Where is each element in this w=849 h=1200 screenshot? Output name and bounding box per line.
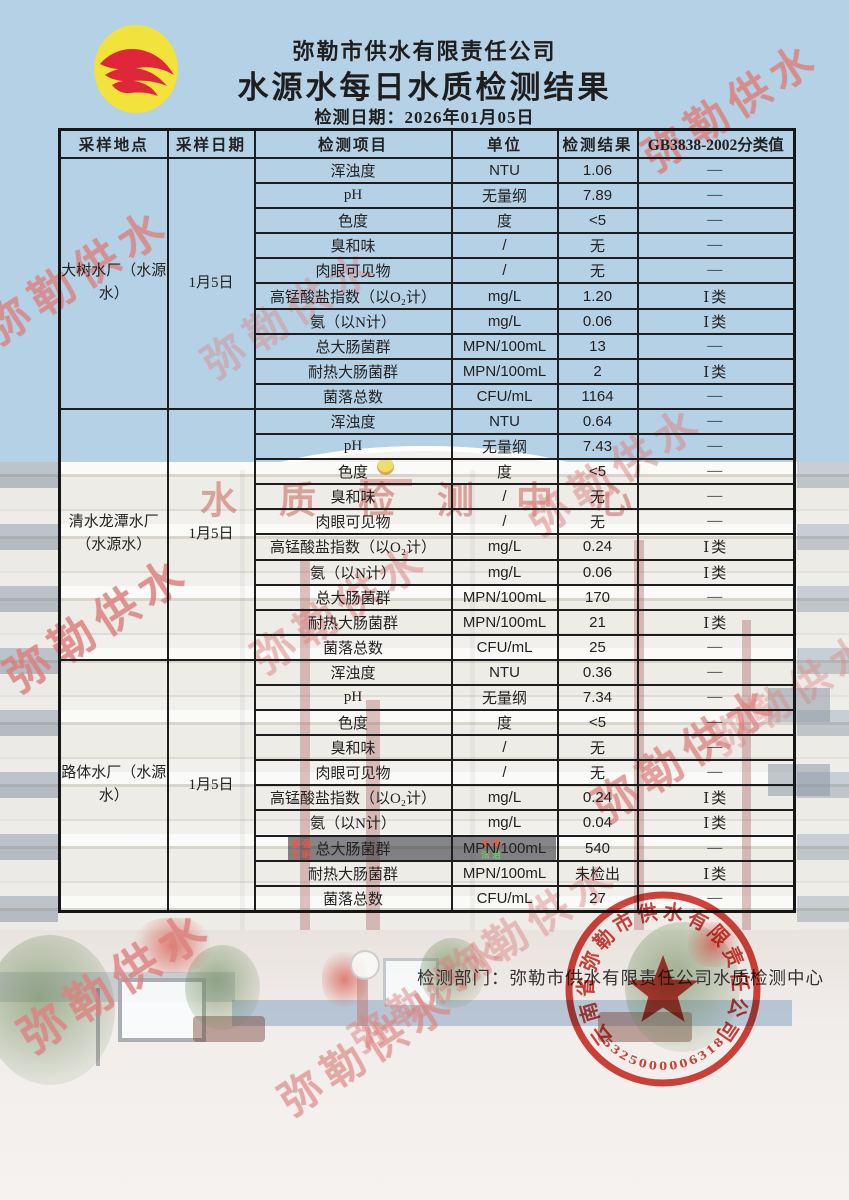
- cell-item: 浑浊度: [255, 409, 452, 434]
- cell-result: <5: [558, 710, 638, 735]
- cell-item: 耐热大肠菌群: [255, 359, 452, 384]
- cell-unit: mg/L: [452, 534, 558, 559]
- cell-unit: CFU/mL: [452, 886, 558, 912]
- cell-unit: CFU/mL: [452, 635, 558, 660]
- cell-result: 0.36: [558, 660, 638, 685]
- cell-unit: MPN/100mL: [452, 359, 558, 384]
- cell-result: 0.06: [558, 309, 638, 334]
- cell-unit: 度: [452, 710, 558, 735]
- results-table: 采样地点采样日期检测项目单位检测结果GB3838-2002分类值 大树水厂（水源…: [58, 128, 796, 913]
- cell-class: Ⅰ类: [638, 810, 795, 835]
- cell-class: —: [638, 334, 795, 359]
- cell-location: 大树水厂（水源水）: [60, 158, 168, 409]
- cell-class: —: [638, 484, 795, 509]
- cell-result: 未检出: [558, 861, 638, 886]
- cell-unit: NTU: [452, 158, 558, 183]
- cell-result: 21: [558, 610, 638, 635]
- cell-item: 肉眼可见物: [255, 509, 452, 534]
- cell-item: 总大肠菌群: [255, 334, 452, 359]
- cell-unit: /: [452, 258, 558, 283]
- cell-item: 浑浊度: [255, 660, 452, 685]
- cell-result: 170: [558, 585, 638, 610]
- cell-result: 1.20: [558, 283, 638, 308]
- cell-result: 1164: [558, 384, 638, 409]
- cell-unit: MPN/100mL: [452, 334, 558, 359]
- cell-class: Ⅰ类: [638, 283, 795, 308]
- cell-item: 色度: [255, 459, 452, 484]
- cell-unit: MPN/100mL: [452, 861, 558, 886]
- cell-class: —: [638, 459, 795, 484]
- cell-result: <5: [558, 459, 638, 484]
- cell-class: —: [638, 710, 795, 735]
- cell-unit: mg/L: [452, 785, 558, 810]
- cell-result: 2: [558, 359, 638, 384]
- cell-unit: NTU: [452, 409, 558, 434]
- cell-item: 臭和味: [255, 735, 452, 760]
- cell-item: pH: [255, 685, 452, 710]
- cell-item: 耐热大肠菌群: [255, 861, 452, 886]
- table-row: 大树水厂（水源水）1月5日浑浊度NTU1.06—: [60, 158, 795, 183]
- cell-item: 肉眼可见物: [255, 760, 452, 785]
- cell-unit: /: [452, 735, 558, 760]
- cell-result: 0.24: [558, 534, 638, 559]
- cell-unit: 无量纲: [452, 434, 558, 459]
- cell-location: 路体水厂（水源水）: [60, 660, 168, 912]
- building-left-wing: [0, 462, 58, 935]
- cell-unit: NTU: [452, 660, 558, 685]
- cell-class: —: [638, 685, 795, 710]
- cell-result: 0.24: [558, 785, 638, 810]
- cell-unit: mg/L: [452, 283, 558, 308]
- table-row: 清水龙潭水厂（水源水）1月5日浑浊度NTU0.64—: [60, 409, 795, 434]
- cell-class: Ⅰ类: [638, 359, 795, 384]
- cell-item: pH: [255, 434, 452, 459]
- cell-item: 色度: [255, 208, 452, 233]
- cell-unit: /: [452, 484, 558, 509]
- cell-result: <5: [558, 208, 638, 233]
- cell-result: 0.06: [558, 560, 638, 585]
- lamp-pole: [96, 988, 100, 1066]
- column-header: 检测项目: [255, 130, 452, 159]
- column-header: 采样地点: [60, 130, 168, 159]
- cell-item: 菌落总数: [255, 635, 452, 660]
- cell-result: 7.89: [558, 183, 638, 208]
- cell-date: 1月5日: [168, 660, 255, 912]
- cell-result: 1.06: [558, 158, 638, 183]
- cell-item: 臭和味: [255, 233, 452, 258]
- cell-result: 7.34: [558, 685, 638, 710]
- table-header-row: 采样地点采样日期检测项目单位检测结果GB3838-2002分类值: [60, 130, 795, 159]
- cell-item: pH: [255, 183, 452, 208]
- cell-class: —: [638, 409, 795, 434]
- cell-class: —: [638, 509, 795, 534]
- cell-class: Ⅰ类: [638, 861, 795, 886]
- column-header: 采样日期: [168, 130, 255, 159]
- cell-class: —: [638, 660, 795, 685]
- cell-class: —: [638, 434, 795, 459]
- cell-unit: CFU/mL: [452, 384, 558, 409]
- cell-class: —: [638, 384, 795, 409]
- cell-class: Ⅰ类: [638, 560, 795, 585]
- cell-result: 7.43: [558, 434, 638, 459]
- cell-result: 0.64: [558, 409, 638, 434]
- cell-location: 清水龙潭水厂（水源水）: [60, 409, 168, 660]
- cell-item: 总大肠菌群: [255, 585, 452, 610]
- seal-number-text: 5325000006318: [600, 1033, 728, 1073]
- test-date-line: 检测日期：2026年01月05日: [0, 103, 849, 128]
- cell-class: —: [638, 760, 795, 785]
- cell-item: 高锰酸盐指数（以O₂计）: [255, 534, 452, 559]
- cell-date: 1月5日: [168, 409, 255, 660]
- cell-unit: mg/L: [452, 810, 558, 835]
- column-header: 检测结果: [558, 130, 638, 159]
- column-header: GB3838-2002分类值: [638, 130, 795, 159]
- cell-class: —: [638, 183, 795, 208]
- cell-unit: 无量纲: [452, 183, 558, 208]
- cell-unit: mg/L: [452, 560, 558, 585]
- cell-unit: mg/L: [452, 309, 558, 334]
- cell-class: —: [638, 258, 795, 283]
- cell-class: —: [638, 158, 795, 183]
- cell-class: Ⅰ类: [638, 534, 795, 559]
- cell-result: 无: [558, 258, 638, 283]
- red-foliage: [135, 918, 210, 973]
- table-row: 路体水厂（水源水）1月5日浑浊度NTU0.36—: [60, 660, 795, 685]
- page-title: 水源水每日水质检测结果: [0, 62, 849, 107]
- cell-unit: 度: [452, 459, 558, 484]
- cell-class: —: [638, 233, 795, 258]
- cell-unit: 无量纲: [452, 685, 558, 710]
- cell-date: 1月5日: [168, 158, 255, 409]
- cell-item: 菌落总数: [255, 886, 452, 912]
- cell-class: —: [638, 585, 795, 610]
- cell-item: 菌落总数: [255, 384, 452, 409]
- cell-unit: /: [452, 509, 558, 534]
- cell-class: Ⅰ类: [638, 610, 795, 635]
- cell-item: 臭和味: [255, 484, 452, 509]
- cell-unit: MPN/100mL: [452, 836, 558, 861]
- cell-result: 13: [558, 334, 638, 359]
- cell-class: —: [638, 208, 795, 233]
- column-header: 单位: [452, 130, 558, 159]
- cell-unit: MPN/100mL: [452, 585, 558, 610]
- cell-class: —: [638, 836, 795, 861]
- company-seal: 云南省弥勒市供水有限责任公司 5325000006318: [560, 886, 766, 1092]
- cell-item: 色度: [255, 710, 452, 735]
- cell-unit: MPN/100mL: [452, 610, 558, 635]
- cell-item: 氨（以N计）: [255, 309, 452, 334]
- cell-item: 高锰酸盐指数（以O₂计）: [255, 785, 452, 810]
- cell-result: 无: [558, 760, 638, 785]
- cell-class: Ⅰ类: [638, 785, 795, 810]
- cell-item: 氨（以N计）: [255, 560, 452, 585]
- cell-class: —: [638, 635, 795, 660]
- cell-result: 25: [558, 635, 638, 660]
- cell-result: 无: [558, 735, 638, 760]
- cell-unit: 度: [452, 208, 558, 233]
- cell-result: 无: [558, 484, 638, 509]
- sign-disc: [350, 950, 380, 980]
- cell-item: 高锰酸盐指数（以O₂计）: [255, 283, 452, 308]
- cell-item: 耐热大肠菌群: [255, 610, 452, 635]
- cell-result: 0.04: [558, 810, 638, 835]
- cell-item: 浑浊度: [255, 158, 452, 183]
- cell-unit: /: [452, 233, 558, 258]
- cell-class: —: [638, 735, 795, 760]
- seal-star-icon: [628, 955, 698, 1022]
- cell-class: Ⅰ类: [638, 309, 795, 334]
- sign-post: [357, 976, 368, 1026]
- cell-result: 540: [558, 836, 638, 861]
- cell-item: 总大肠菌群: [255, 836, 452, 861]
- report-page: 水质检测中心 富强 文明 平等 法治 弥勒供水弥勒供水弥勒供水弥勒供水弥勒供水弥…: [0, 0, 849, 1200]
- cell-result: 无: [558, 509, 638, 534]
- cell-unit: /: [452, 760, 558, 785]
- cell-item: 肉眼可见物: [255, 258, 452, 283]
- cell-result: 无: [558, 233, 638, 258]
- cell-item: 氨（以N计）: [255, 810, 452, 835]
